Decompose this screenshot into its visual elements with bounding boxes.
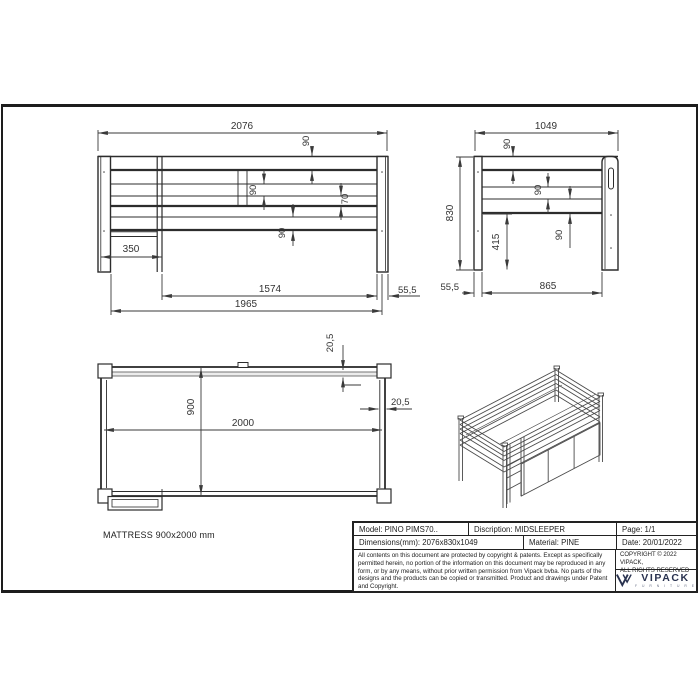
vipack-logo-icon xyxy=(616,573,632,587)
dim-side-overall-depth: 1049 xyxy=(535,121,558,132)
date-field: Date: 20/01/2022 xyxy=(617,536,696,550)
model-field: Model: PINO PIMS70.. xyxy=(354,523,469,536)
brand-subtitle: F U R N I T U R E xyxy=(635,585,696,588)
copyright-notice: All contents on this document are protec… xyxy=(354,550,616,591)
title-block-row-2: Dimensions(mm): 2076x830x1049 Material: … xyxy=(354,536,696,550)
isometric-view xyxy=(458,366,604,508)
mattress-note: MATTRESS 900x2000 mm xyxy=(103,530,215,540)
top-view-dimensions: 900 2000 20,5 20,5 xyxy=(104,334,412,495)
copyright-brand-cell: COPYRIGHT © 2022 VIPACK, ALL RIGHTS RESE… xyxy=(616,550,696,591)
brand-wordmark: VIPACK F U R N I T U R E xyxy=(635,573,696,588)
dim-top-inner-length: 2000 xyxy=(232,418,255,429)
dim-front-ladder-inset: 350 xyxy=(123,244,140,255)
dim-front-outer-length: 1965 xyxy=(235,299,258,310)
dim-side-overall-height: 830 xyxy=(445,204,456,221)
title-block-row-3: All contents on this document are protec… xyxy=(354,550,696,591)
dim-top-plank-thickness-top: 20,5 xyxy=(325,334,336,353)
dim-side-post-thickness: 55,5 xyxy=(441,282,460,293)
dimensions-field: Dimensions(mm): 2076x830x1049 xyxy=(354,536,524,550)
brand-logo: VIPACK F U R N I T U R E xyxy=(616,570,696,591)
front-view-dimensions: 2076 90 90 70 90 350 1574 55,5 1965 xyxy=(98,121,420,315)
dim-front-rail-90-base: 90 xyxy=(277,228,288,239)
dim-front-frame-length: 1574 xyxy=(259,284,282,295)
copyright-short: COPYRIGHT © 2022 VIPACK, ALL RIGHTS RESE… xyxy=(616,550,696,570)
dim-side-frame-depth: 865 xyxy=(540,281,557,292)
description-field: Discription: MIDSLEEPER xyxy=(469,523,617,536)
dim-side-rail-90-base: 90 xyxy=(554,230,565,241)
dim-top-inner-width: 900 xyxy=(186,398,197,415)
dim-top-plank-thickness-side: 20,5 xyxy=(391,397,410,408)
front-view xyxy=(98,157,388,273)
copyright-line-1: COPYRIGHT © 2022 VIPACK, xyxy=(620,552,677,566)
dim-side-rail-90-top: 90 xyxy=(502,139,513,150)
dim-front-overall-width: 2076 xyxy=(231,121,254,132)
title-block: Model: PINO PIMS70.. Discription: MIDSLE… xyxy=(352,521,698,593)
brand-name: VIPACK xyxy=(641,573,690,584)
dim-front-gap-70: 70 xyxy=(340,194,351,205)
side-view xyxy=(474,157,618,271)
title-block-row-1: Model: PINO PIMS70.. Discription: MIDSLE… xyxy=(354,523,696,536)
dim-front-rail-90-top: 90 xyxy=(301,136,312,147)
side-view-dimensions: 1049 90 90 90 830 415 55,5 865 xyxy=(441,121,619,297)
material-field: Material: PINE xyxy=(524,536,617,550)
dim-side-under-clearance: 415 xyxy=(491,233,502,250)
page-field: Page: 1/1 xyxy=(617,523,696,536)
dim-front-post-thickness: 55,5 xyxy=(398,285,417,296)
technical-drawing: 2076 90 90 70 90 350 1574 55,5 1965 xyxy=(0,0,700,700)
dim-front-rail-90-mid: 90 xyxy=(248,185,259,196)
dim-side-rail-90-mid: 90 xyxy=(533,185,544,196)
